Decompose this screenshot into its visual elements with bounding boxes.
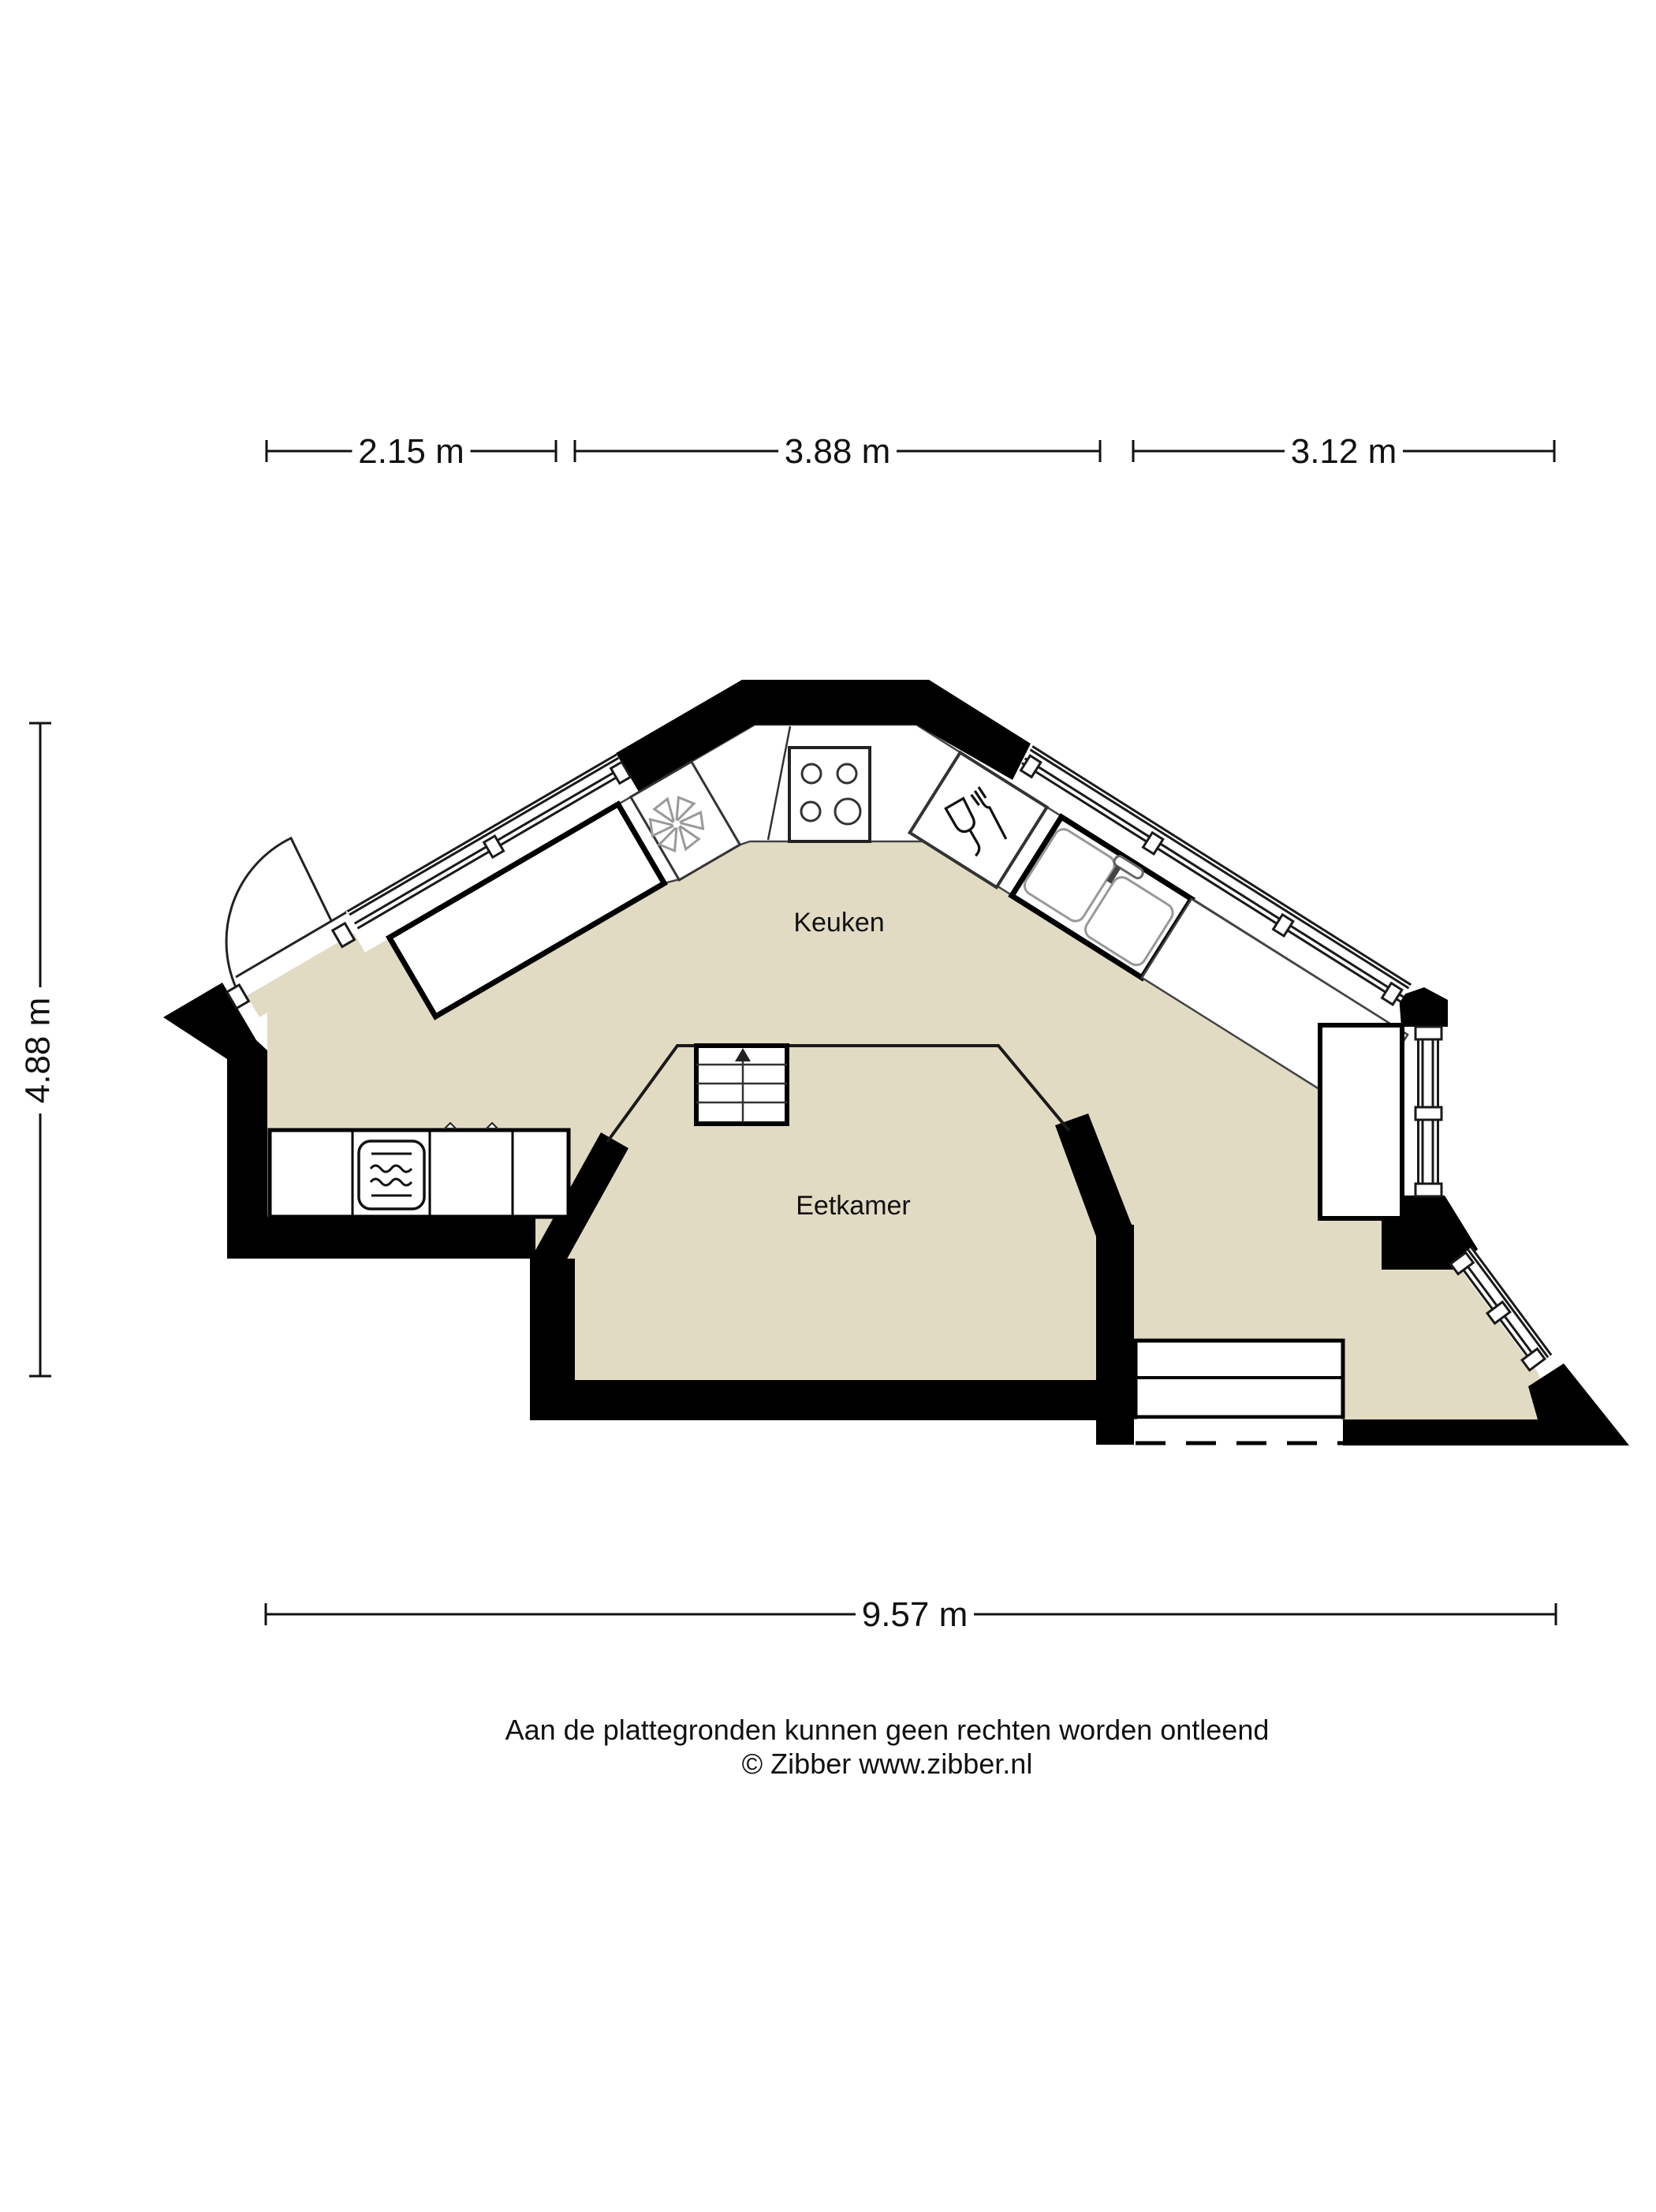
svg-text:Keuken: Keuken [793,908,884,938]
svg-text:Eetkamer: Eetkamer [796,1191,911,1221]
svg-text:9.57 m: 9.57 m [862,1595,968,1634]
svg-text:3.12 m: 3.12 m [1291,432,1397,471]
svg-text:2.15 m: 2.15 m [358,432,464,471]
svg-text:4.88 m: 4.88 m [19,998,58,1104]
svg-text:© Zibber www.zibber.nl: © Zibber www.zibber.nl [742,1748,1033,1780]
svg-text:Aan de plattegronden kunnen ge: Aan de plattegronden kunnen geen rechten… [505,1714,1270,1746]
svg-text:3.88 m: 3.88 m [785,432,891,471]
